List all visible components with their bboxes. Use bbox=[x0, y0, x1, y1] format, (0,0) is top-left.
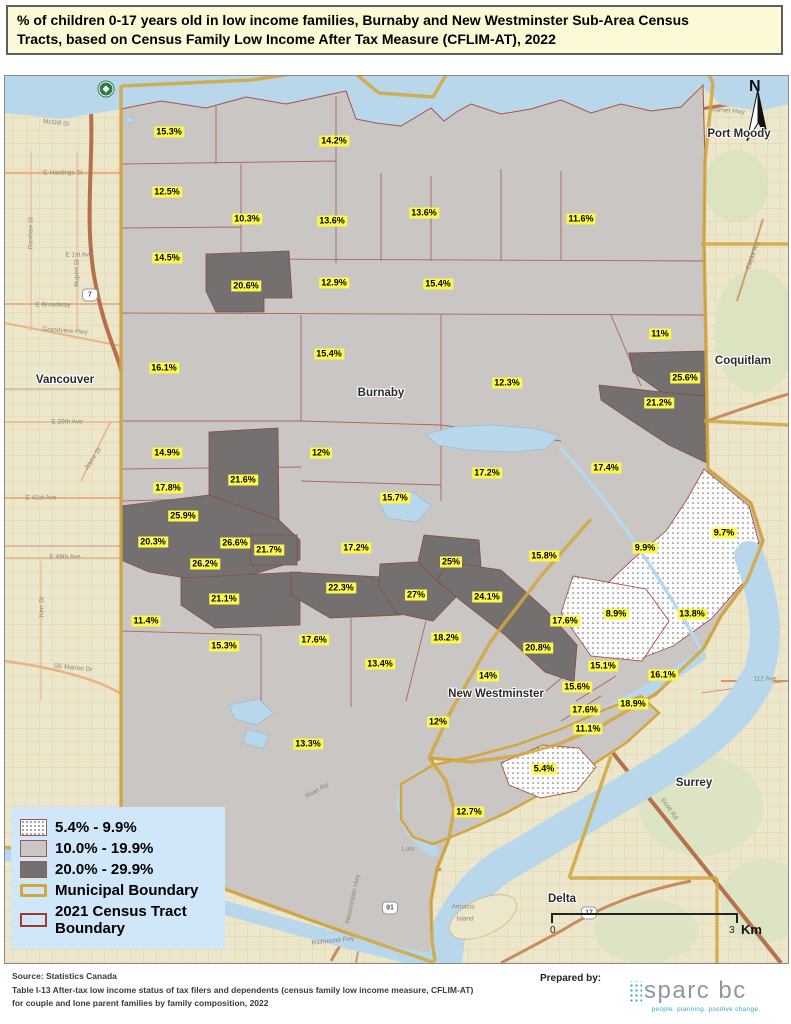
scale-unit-label: Km bbox=[741, 922, 762, 937]
source-line: Source: Statistics Canada bbox=[12, 970, 473, 984]
tract-value-label: 21.1% bbox=[209, 594, 239, 605]
spark-dots-icon bbox=[628, 981, 642, 1003]
tract-value-label: 15.3% bbox=[209, 641, 239, 652]
map-legend: 5.4% - 9.9% 10.0% - 19.9% 20.0% - 29.9% … bbox=[11, 807, 225, 949]
tract-value-label: 12% bbox=[310, 448, 332, 459]
tract-value-label: 12.9% bbox=[319, 278, 349, 289]
tract-value-label: 17.6% bbox=[550, 616, 580, 627]
map-report-page: { "title": { "line1": "% of children 0-1… bbox=[0, 0, 791, 1024]
tract-value-label: 21.7% bbox=[254, 545, 284, 556]
tract-value-label: 13.4% bbox=[365, 659, 395, 670]
tract-value-label: 17.6% bbox=[570, 705, 600, 716]
tract-value-label: 17.2% bbox=[472, 468, 502, 479]
scale-zero-label: 0 bbox=[550, 925, 556, 936]
tract-value-label: 14.9% bbox=[152, 448, 182, 459]
tract-value-label: 18.2% bbox=[431, 633, 461, 644]
legend-label: 20.0% - 29.9% bbox=[55, 861, 153, 878]
logo-row: sparc bc bbox=[628, 979, 784, 1003]
tract-value-label: 8.9% bbox=[604, 609, 629, 620]
map-title-line1: % of children 0-17 years old in low inco… bbox=[17, 11, 772, 30]
tract-value-label: 25% bbox=[440, 557, 462, 568]
logo-name: sparc bc bbox=[644, 979, 747, 1003]
legend-swatch-dark-gray bbox=[20, 861, 47, 878]
tract-value-label: 12.5% bbox=[152, 187, 182, 198]
legend-swatch-dotted bbox=[20, 819, 47, 836]
tract-value-label: 13.8% bbox=[677, 609, 707, 620]
tract-value-label: 24.1% bbox=[472, 592, 502, 603]
tract-value-label: 11.1% bbox=[573, 724, 602, 735]
tract-value-label: 9.7% bbox=[712, 528, 737, 539]
north-label: N bbox=[749, 78, 761, 96]
tract-value-label: 13.6% bbox=[409, 208, 439, 219]
legend-row: 5.4% - 9.9% bbox=[20, 819, 216, 836]
source-line: Table I-13 After-tax low income status o… bbox=[12, 984, 473, 998]
tract-value-label: 20.6% bbox=[231, 281, 261, 292]
tract-value-label: 15.1% bbox=[588, 661, 618, 672]
tract-value-label: 11.4% bbox=[131, 616, 160, 627]
map-title: % of children 0-17 years old in low inco… bbox=[6, 5, 783, 55]
legend-label: 10.0% - 19.9% bbox=[55, 840, 153, 857]
tract-value-label: 11% bbox=[649, 329, 671, 340]
legend-swatch-light-gray bbox=[20, 840, 47, 857]
scale-bar: 0 3 Km bbox=[551, 913, 738, 923]
tract-value-label: 20.3% bbox=[138, 537, 168, 548]
legend-row: 2021 Census Tract Boundary bbox=[20, 903, 216, 937]
map-title-line2: Tracts, based on Census Family Low Incom… bbox=[17, 30, 772, 49]
tract-value-label: 25.9% bbox=[168, 511, 198, 522]
tract-value-label: 20.8% bbox=[523, 643, 553, 654]
legend-label: Municipal Boundary bbox=[55, 882, 198, 899]
tract-value-label: 25.6% bbox=[670, 373, 700, 384]
tract-value-label: 14.2% bbox=[319, 136, 349, 147]
tract-value-label: 17.6% bbox=[299, 635, 329, 646]
tract-value-label: 15.3% bbox=[154, 127, 184, 138]
tract-value-label: 14.5% bbox=[152, 253, 182, 264]
tract-value-label: 15.4% bbox=[423, 279, 453, 290]
tract-value-label: 22.3% bbox=[326, 583, 356, 594]
logo-tagline: people. planning. positive change. bbox=[628, 1006, 784, 1013]
prepared-by-label: Prepared by: bbox=[540, 973, 601, 984]
tract-value-label: 17.8% bbox=[153, 483, 183, 494]
tract-value-label: 18.9% bbox=[618, 699, 648, 710]
scale-max-label: 3 bbox=[729, 925, 735, 936]
tract-value-label: 10.3% bbox=[232, 214, 262, 225]
tract-value-label: 15.6% bbox=[562, 682, 592, 693]
legend-label: 5.4% - 9.9% bbox=[55, 819, 137, 836]
tract-value-label: 14% bbox=[477, 671, 499, 682]
legend-row: 10.0% - 19.9% bbox=[20, 840, 216, 857]
tract-value-label: 12.3% bbox=[492, 378, 522, 389]
legend-swatch-census-tract-boundary bbox=[20, 913, 47, 927]
tract-value-label: 9.9% bbox=[633, 543, 658, 554]
legend-row: Municipal Boundary bbox=[20, 882, 216, 899]
tract-value-label: 13.6% bbox=[317, 216, 347, 227]
tract-value-label: 27% bbox=[405, 590, 427, 601]
tract-value-label: 12.7% bbox=[454, 807, 484, 818]
tract-value-label: 17.4% bbox=[591, 463, 621, 474]
tract-value-label: 16.1% bbox=[149, 363, 179, 374]
tract-value-label: 21.2% bbox=[644, 398, 674, 409]
tract-value-label: 21.6% bbox=[228, 475, 258, 486]
map-canvas[interactable]: McGill StE Hastings StRenfrew StRupert S… bbox=[4, 75, 789, 964]
tract-value-label: 15.7% bbox=[380, 493, 410, 504]
tract-value-label: 13.3% bbox=[293, 739, 323, 750]
sparc-bc-logo: sparc bc people. planning. positive chan… bbox=[628, 979, 784, 1013]
tract-value-label: 15.4% bbox=[314, 349, 344, 360]
tract-value-label: 15.8% bbox=[529, 551, 559, 562]
tract-value-label: 16.1% bbox=[648, 670, 678, 681]
tract-value-label: 26.6% bbox=[220, 538, 250, 549]
tract-value-label: 12% bbox=[427, 717, 449, 728]
tract-value-label: 5.4% bbox=[532, 764, 557, 775]
tract-value-label: 11.6% bbox=[566, 214, 595, 225]
source-note: Source: Statistics Canada Table I-13 Aft… bbox=[12, 970, 473, 1011]
legend-swatch-municipal-boundary bbox=[20, 884, 47, 897]
tract-value-label: 17.2% bbox=[341, 543, 371, 554]
legend-label: 2021 Census Tract Boundary bbox=[55, 903, 216, 937]
legend-row: 20.0% - 29.9% bbox=[20, 861, 216, 878]
tract-value-label: 26.2% bbox=[190, 559, 220, 570]
source-line: for couple and lone parent families by f… bbox=[12, 997, 473, 1011]
